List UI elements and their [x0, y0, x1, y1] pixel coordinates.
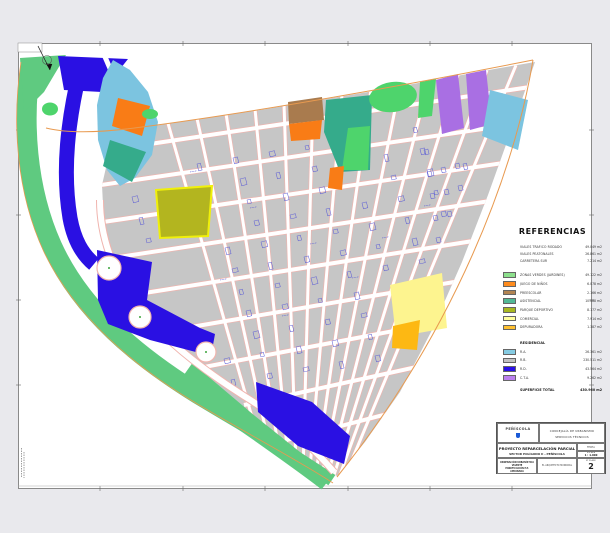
legend-swatch: [503, 366, 516, 372]
legend-row-label: C.T.A.: [520, 376, 587, 380]
legend-row-value: 6.078 m2: [587, 282, 602, 286]
legend-row: DEPURADORA1.387 m2: [503, 325, 602, 331]
legend-swatch: [503, 358, 516, 364]
parcel-parque-deportivo: [156, 186, 212, 238]
legend-swatch: [503, 290, 516, 296]
legend-row-label: ZONAS VERDES (JARDINES): [520, 273, 585, 277]
fecha-label: FECHA: [578, 446, 604, 449]
legend-swatch: [503, 272, 516, 278]
legend-row-value: 7.914 m2: [587, 317, 602, 321]
green-island: [42, 103, 58, 116]
legend-row: PREESCOLAR2.166 m2: [503, 290, 602, 296]
legend-total-label: SUPERFICIE TOTAL: [520, 388, 580, 392]
escala-value: 1 : 1.000: [578, 454, 604, 457]
legend-row-label: R.D.: [520, 367, 585, 371]
legend-residencial-group: R.A.26.361 m2R.B.230.511 m2R.D.43.564 m2…: [503, 349, 602, 381]
legend: REFERENCIAS VIALES TRAFICO RODADO49.049 …: [503, 227, 602, 392]
plano-number: 2: [578, 462, 604, 472]
legend-row-label: CARRETERA SUR: [520, 259, 587, 263]
project-title: PROYECTO REPARCELACIÓN PARCIAL: [498, 447, 576, 451]
dept-line2: SERVICIOS TÉCNICOS: [540, 435, 604, 439]
legend-row: VIALES TRAFICO RODADO49.049 m2: [503, 245, 602, 249]
architect-cell: EL ARQUITECTO MUNICIPAL: [537, 458, 577, 474]
legend-row-value: 43.564 m2: [585, 367, 602, 371]
legend-row: R.A.26.361 m2: [503, 349, 602, 355]
legend-row: CARRETERA SUR7.214 m2: [503, 259, 602, 263]
escala-cell: ESCALA 1 : 1.000: [577, 451, 605, 459]
legend-row-value: 7.214 m2: [587, 259, 602, 263]
legend-row-label: R.B.: [520, 358, 583, 362]
plano-number-cell: Nº PLANO 2: [577, 458, 605, 474]
legend-row-value: 230.511 m2: [583, 358, 602, 362]
parcel-preescolar: [288, 97, 324, 124]
legend-row-label: ASISTENCIAL: [520, 299, 585, 303]
green-island: [142, 109, 158, 119]
legend-row-label: JUEGO DE NIÑOS: [520, 282, 587, 286]
legend-row-label: PREESCOLAR: [520, 291, 587, 295]
legend-row-value: 26.861 m2: [585, 252, 602, 256]
legend-row: R.B.230.511 m2: [503, 358, 602, 364]
legend-swatch: [503, 316, 516, 322]
legend-total-value: 430.960 m2: [580, 388, 602, 392]
legend-residencial-title: RESIDENCIAL: [520, 341, 602, 345]
legend-swatch: [503, 281, 516, 287]
margin-note-marks: [22, 448, 25, 478]
legend-row-label: COMERCIAL: [520, 317, 587, 321]
legend-row-value: 49.049 m2: [585, 245, 602, 249]
legend-row: VIALES PEATONALES26.861 m2: [503, 252, 602, 256]
ordenacion-line: APROBADA: [498, 470, 536, 473]
legend-row-value: 49.122 m2: [585, 273, 602, 277]
legend-swatch: [503, 298, 516, 304]
legend-row: COMERCIAL7.914 m2: [503, 316, 602, 322]
shield-icon: [516, 433, 520, 438]
title-block: PEÑÍSCOLA CONCEJALÍA DE URBANISMO SERVIC…: [496, 422, 606, 474]
architect-line: EL ARQUITECTO MUNICIPAL: [538, 464, 576, 467]
legend-row: C.T.A.9.262 m2: [503, 375, 602, 381]
legend-swatch: [503, 375, 516, 381]
legend-viales-group: VIALES TRAFICO RODADO49.049 m2VIALES PEA…: [503, 245, 602, 263]
legend-row-label: R.A.: [520, 350, 585, 354]
logo-text: PEÑÍSCOLA: [498, 427, 538, 431]
legend-row-value: 26.361 m2: [585, 350, 602, 354]
legend-swatch: [503, 349, 516, 355]
legend-total-row: SUPERFICIE TOTAL 430.960 m2: [503, 388, 602, 392]
project-title-cell: PROYECTO REPARCELACIÓN PARCIAL SECTOR PO…: [497, 443, 577, 458]
legend-row: PARQUE DEPORTIVO8.177 m2: [503, 307, 602, 313]
legend-row-label: DEPURADORA: [520, 325, 587, 329]
legend-row-label: VIALES TRAFICO RODADO: [520, 245, 585, 249]
legend-row: R.D.43.564 m2: [503, 366, 602, 372]
fecha-cell: FECHA: [577, 443, 605, 451]
legend-row: JUEGO DE NIÑOS6.078 m2: [503, 281, 602, 287]
legend-row-value: 9.262 m2: [587, 376, 602, 380]
ordenacion-cell: ORDENACIÓN URBANÍSTICAVIGENTEMODIFICACIÓ…: [497, 458, 537, 474]
parcel-orange-small: [328, 166, 344, 190]
project-subtitle: SECTOR POLÍGONO II - PEÑÍSCOLA: [498, 452, 576, 456]
department-cell: CONCEJALÍA DE URBANISMO SERVICIOS TÉCNIC…: [539, 423, 605, 443]
municipality-logo: PEÑÍSCOLA: [497, 423, 539, 443]
legend-row: ZONAS VERDES (JARDINES)49.122 m2: [503, 272, 602, 278]
legend-row-label: PARQUE DEPORTIVO: [520, 308, 587, 312]
legend-row: ASISTENCIAL10.088 m2: [503, 298, 602, 304]
legend-row-label: VIALES PEATONALES: [520, 252, 585, 256]
legend-swatch: [503, 325, 516, 331]
legend-title: REFERENCIAS: [503, 227, 602, 236]
legend-zonas-group: ZONAS VERDES (JARDINES)49.122 m2JUEGO DE…: [503, 272, 602, 330]
legend-row-value: 2.166 m2: [587, 291, 602, 295]
legend-row-value: 8.177 m2: [587, 308, 602, 312]
legend-swatch: [503, 307, 516, 313]
legend-row-value: 10.088 m2: [585, 299, 602, 303]
legend-row-value: 1.387 m2: [587, 325, 602, 329]
dept-line1: CONCEJALÍA DE URBANISMO: [540, 429, 604, 433]
